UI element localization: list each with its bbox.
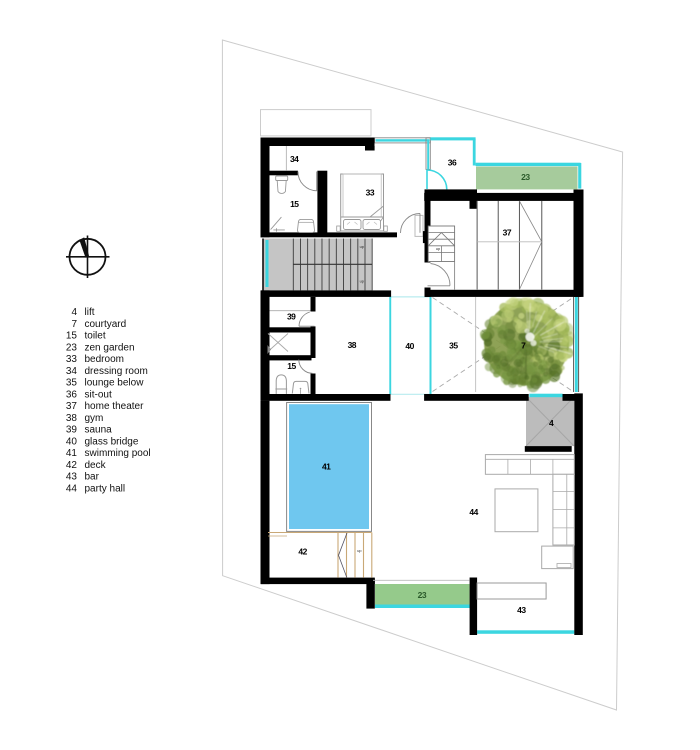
svg-text:41: 41 <box>322 462 331 472</box>
svg-text:swimming pool: swimming pool <box>85 448 151 459</box>
svg-text:glass bridge: glass bridge <box>85 436 139 447</box>
svg-text:37: 37 <box>503 228 512 238</box>
svg-text:37: 37 <box>66 401 78 412</box>
svg-text:7: 7 <box>71 319 77 330</box>
svg-text:up: up <box>357 549 361 553</box>
svg-text:41: 41 <box>66 448 78 459</box>
svg-text:43: 43 <box>517 605 526 615</box>
svg-text:33: 33 <box>366 187 375 197</box>
svg-text:sauna: sauna <box>85 425 113 436</box>
svg-text:35: 35 <box>66 378 78 389</box>
svg-text:23: 23 <box>66 342 78 353</box>
svg-text:43: 43 <box>66 472 78 483</box>
svg-text:15: 15 <box>287 361 296 371</box>
svg-text:gym: gym <box>85 413 104 424</box>
svg-text:home theater: home theater <box>85 401 145 412</box>
svg-text:zen garden: zen garden <box>85 342 135 353</box>
svg-text:23: 23 <box>521 172 530 182</box>
svg-text:bedroom: bedroom <box>85 354 124 365</box>
svg-text:15: 15 <box>66 331 78 342</box>
svg-text:up: up <box>360 279 364 283</box>
svg-text:sit-out: sit-out <box>85 389 112 400</box>
svg-text:courtyard: courtyard <box>85 319 127 330</box>
svg-text:40: 40 <box>405 341 414 351</box>
svg-text:bar: bar <box>85 472 100 483</box>
svg-text:up: up <box>436 247 440 251</box>
svg-text:lounge below: lounge below <box>85 378 145 389</box>
svg-text:38: 38 <box>348 340 357 350</box>
svg-text:44: 44 <box>469 507 478 517</box>
svg-text:33: 33 <box>66 354 78 365</box>
svg-text:36: 36 <box>66 389 78 400</box>
svg-text:34: 34 <box>290 154 299 164</box>
svg-text:dressing room: dressing room <box>85 366 148 377</box>
svg-text:39: 39 <box>287 312 296 322</box>
svg-text:4: 4 <box>71 307 77 318</box>
svg-text:23: 23 <box>418 590 427 600</box>
svg-text:40: 40 <box>66 436 78 447</box>
svg-text:party hall: party hall <box>85 483 126 494</box>
svg-text:35: 35 <box>449 340 458 350</box>
svg-text:toilet: toilet <box>85 331 106 342</box>
svg-text:42: 42 <box>66 460 78 471</box>
svg-text:deck: deck <box>85 460 107 471</box>
svg-text:up: up <box>360 245 364 249</box>
svg-text:42: 42 <box>298 547 307 557</box>
svg-text:lift: lift <box>85 307 95 318</box>
svg-text:36: 36 <box>448 157 457 167</box>
svg-text:39: 39 <box>66 425 78 436</box>
svg-text:34: 34 <box>66 366 78 377</box>
svg-text:15: 15 <box>290 199 299 209</box>
svg-text:44: 44 <box>66 483 78 494</box>
svg-text:38: 38 <box>66 413 78 424</box>
